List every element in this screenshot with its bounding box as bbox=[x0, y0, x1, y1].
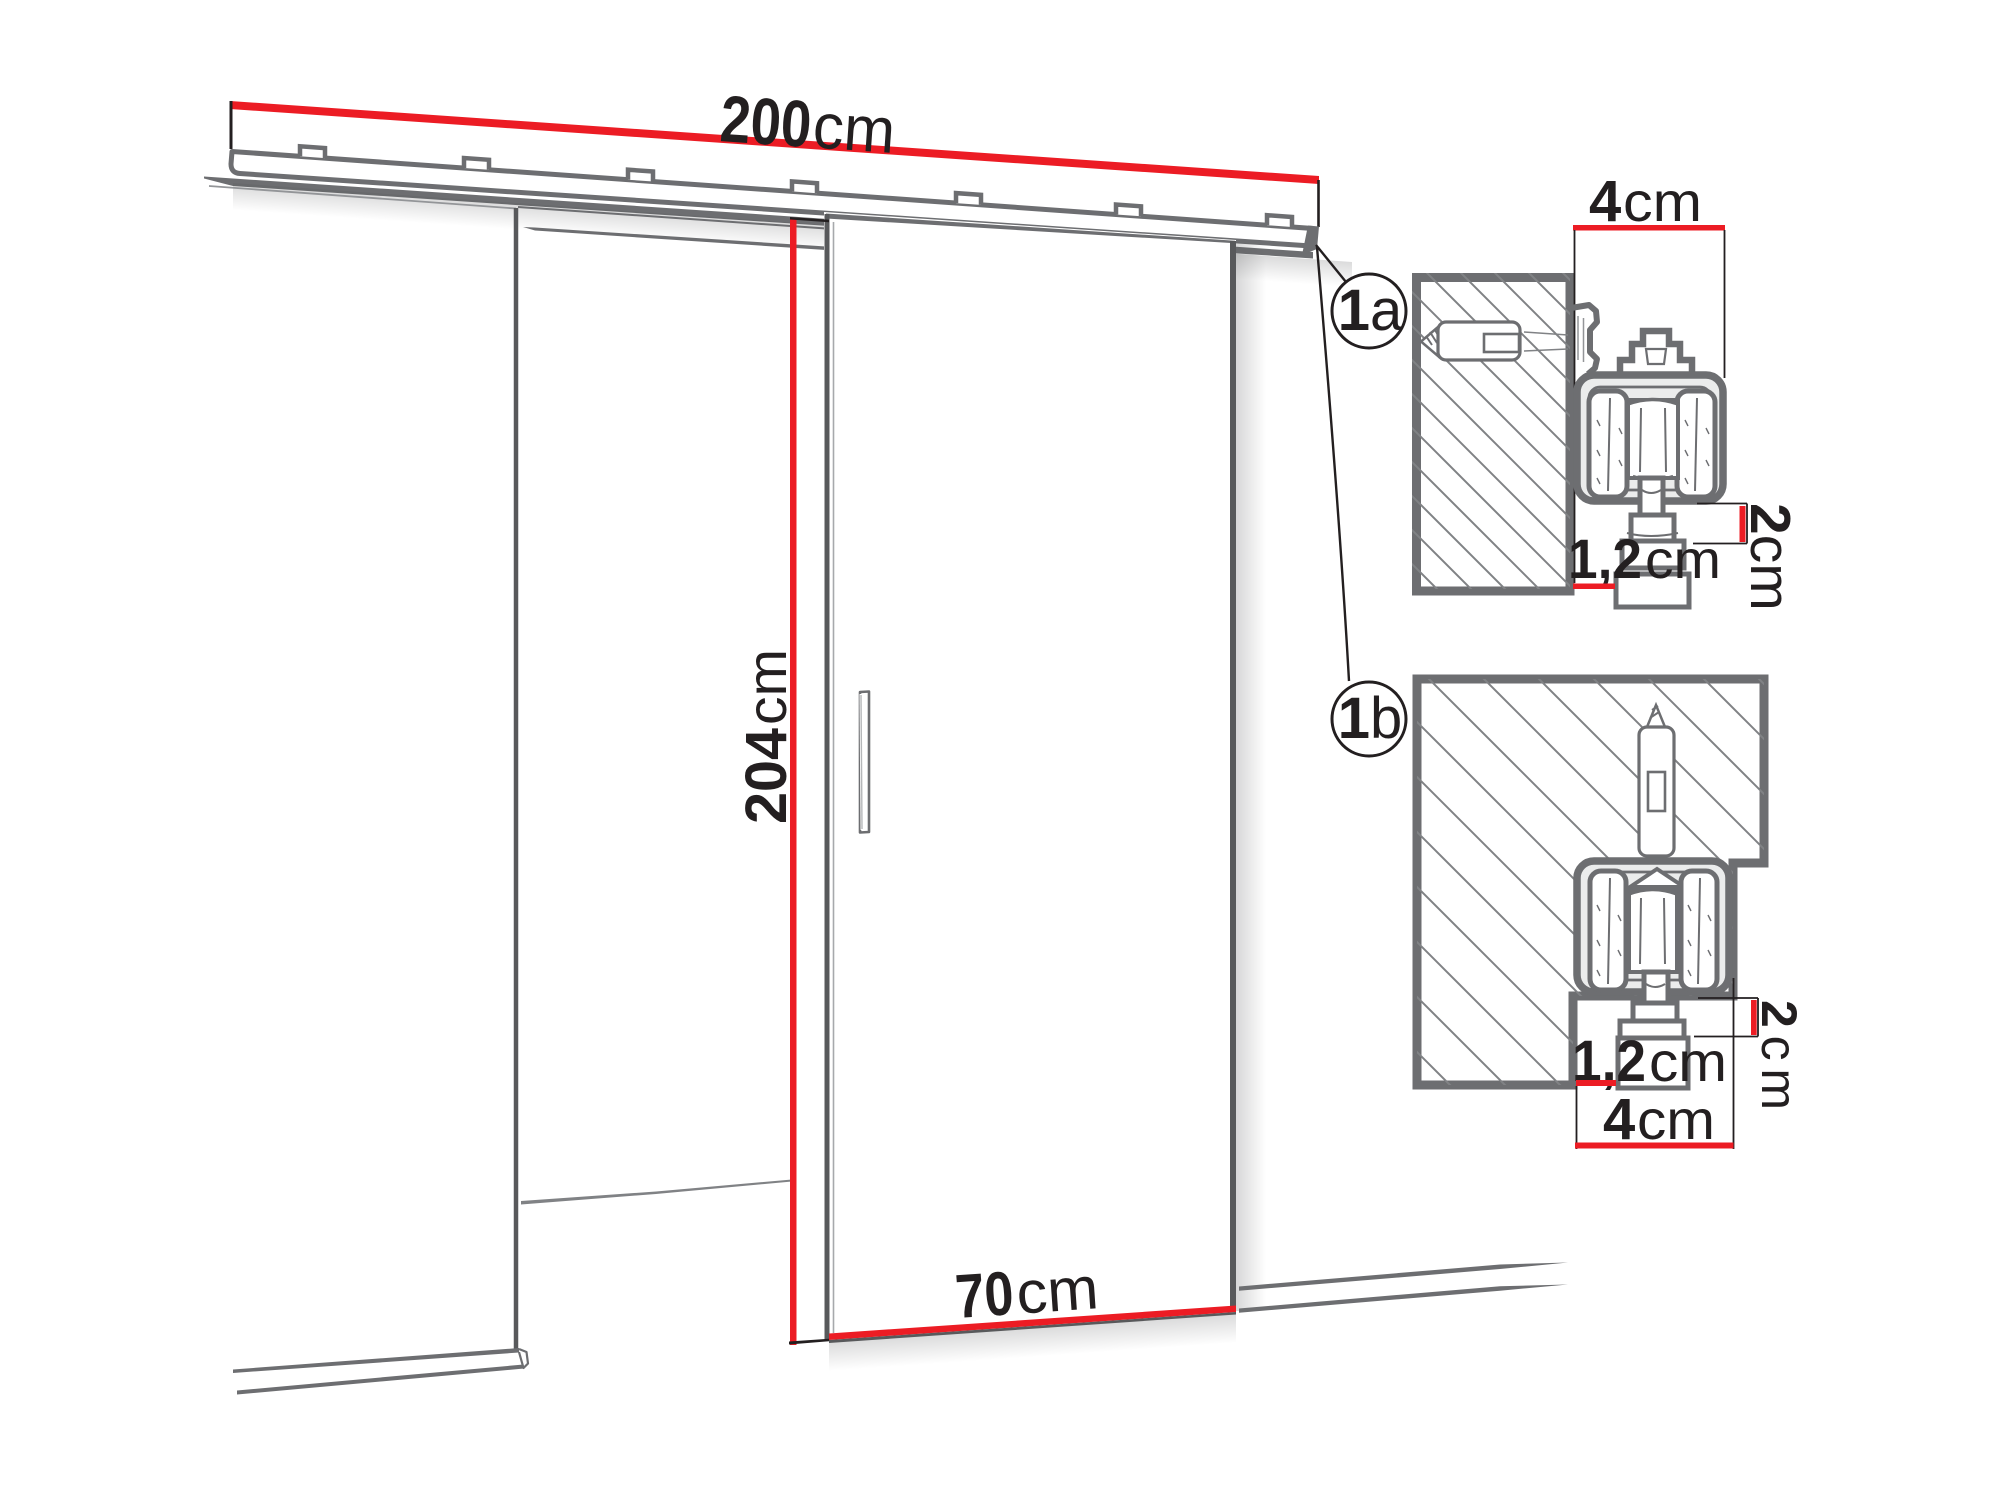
svg-text:cm: cm bbox=[1623, 170, 1702, 233]
svg-text:200: 200 bbox=[718, 81, 814, 161]
svg-text:cm: cm bbox=[1649, 1030, 1727, 1093]
svg-text:cm: cm bbox=[1645, 530, 1721, 590]
svg-text:cm: cm bbox=[1014, 1254, 1100, 1326]
svg-text:70: 70 bbox=[953, 1259, 1016, 1332]
svg-text:1,2: 1,2 bbox=[1568, 527, 1642, 590]
svg-text:4: 4 bbox=[1603, 1087, 1635, 1152]
svg-text:2cm: 2cm bbox=[1751, 1000, 1807, 1110]
svg-text:cm: cm bbox=[1637, 1088, 1715, 1151]
svg-text:4: 4 bbox=[1589, 169, 1621, 234]
svg-text:204: 204 bbox=[734, 728, 799, 824]
svg-text:1a: 1a bbox=[1338, 278, 1403, 343]
svg-text:cm: cm bbox=[811, 90, 898, 167]
svg-text:cm: cm bbox=[735, 649, 798, 725]
svg-text:1b: 1b bbox=[1338, 686, 1403, 751]
svg-text:2cm: 2cm bbox=[1738, 503, 1802, 611]
